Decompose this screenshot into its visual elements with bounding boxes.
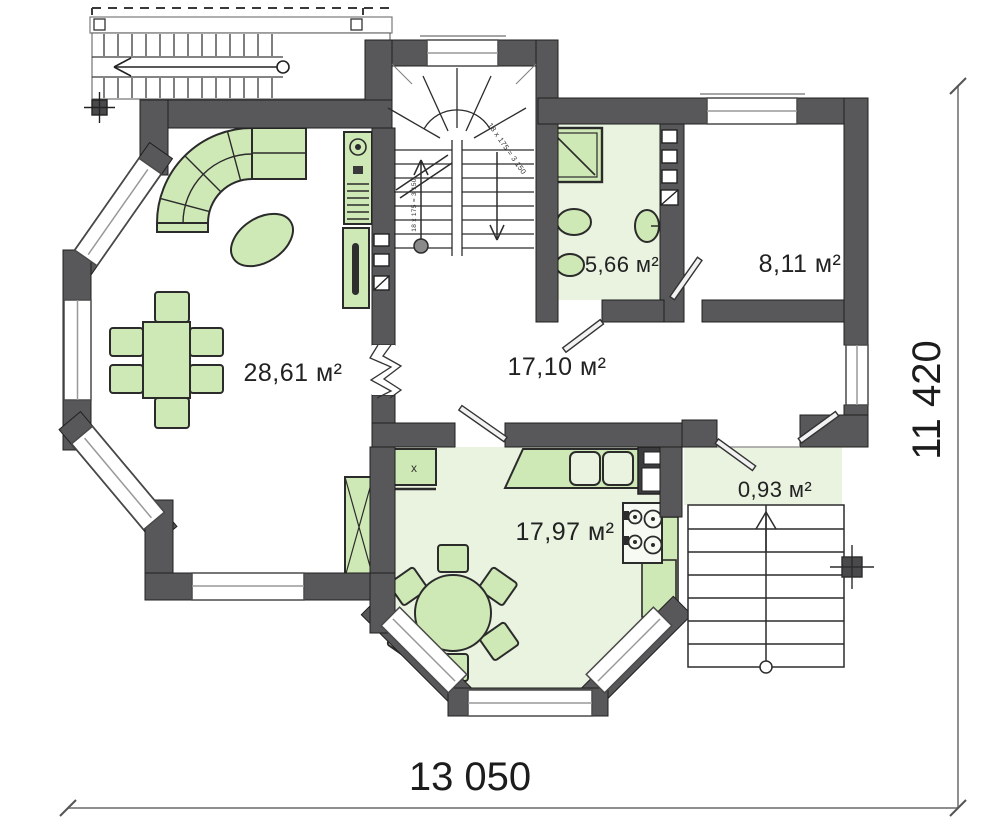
- dining-chair: [190, 328, 223, 356]
- kitchen-cabinet-mark: x: [411, 461, 417, 475]
- height-dimension-label: 11 420: [905, 340, 949, 459]
- dining-chair: [155, 292, 189, 322]
- floor-plan-page: 28,61 м² 17,10 м² 5,66 м² 8,11 м² 17,97 …: [0, 0, 1000, 822]
- corner-sofa-armrest: [157, 223, 208, 232]
- bedroom-area-label: 8,11 м²: [759, 250, 842, 278]
- window-kitchen-bay-bottom: [468, 690, 592, 716]
- cooktop: [623, 503, 662, 563]
- tv-cabinet: [343, 228, 369, 308]
- dining-chair: [110, 365, 143, 393]
- stair-annotation-flight: 18 x 175 = 3 150: [411, 178, 418, 231]
- canopy: [90, 17, 392, 33]
- window-stair-tower: [420, 36, 506, 66]
- hallway-area-label: 17,10 м²: [507, 353, 606, 381]
- floor-plan-drawing: 28,61 м² 17,10 м² 5,66 м² 8,11 м² 17,97 …: [0, 0, 1000, 822]
- dining-chair: [155, 398, 189, 428]
- dining-table: [143, 322, 190, 398]
- stair-area: [92, 33, 390, 99]
- window-hall-right: [846, 345, 868, 405]
- entrance-stair: [688, 505, 874, 673]
- living-room-area-label: 28,61 м²: [243, 359, 342, 387]
- washbasin: [635, 210, 659, 242]
- fireplace-unit: [344, 132, 372, 224]
- canopy-post-left: [94, 19, 105, 30]
- bathroom-area-label: 5,66 м²: [585, 252, 659, 277]
- stair-start-marker: [760, 661, 772, 673]
- canopy-post-right: [351, 19, 362, 30]
- kitchen-chair: [438, 545, 468, 572]
- width-dimension-label: 13 050: [409, 755, 531, 799]
- wardrobe: [345, 477, 373, 577]
- window-bedroom-top: [700, 94, 805, 124]
- kitchen-area-label: 17,97 м²: [515, 518, 614, 546]
- window-living-bottom: [192, 573, 304, 600]
- porch-area-label: 0,93 м²: [738, 477, 812, 502]
- window-bay-west: [64, 300, 91, 400]
- dining-chair: [190, 365, 223, 393]
- dining-chair: [110, 328, 143, 356]
